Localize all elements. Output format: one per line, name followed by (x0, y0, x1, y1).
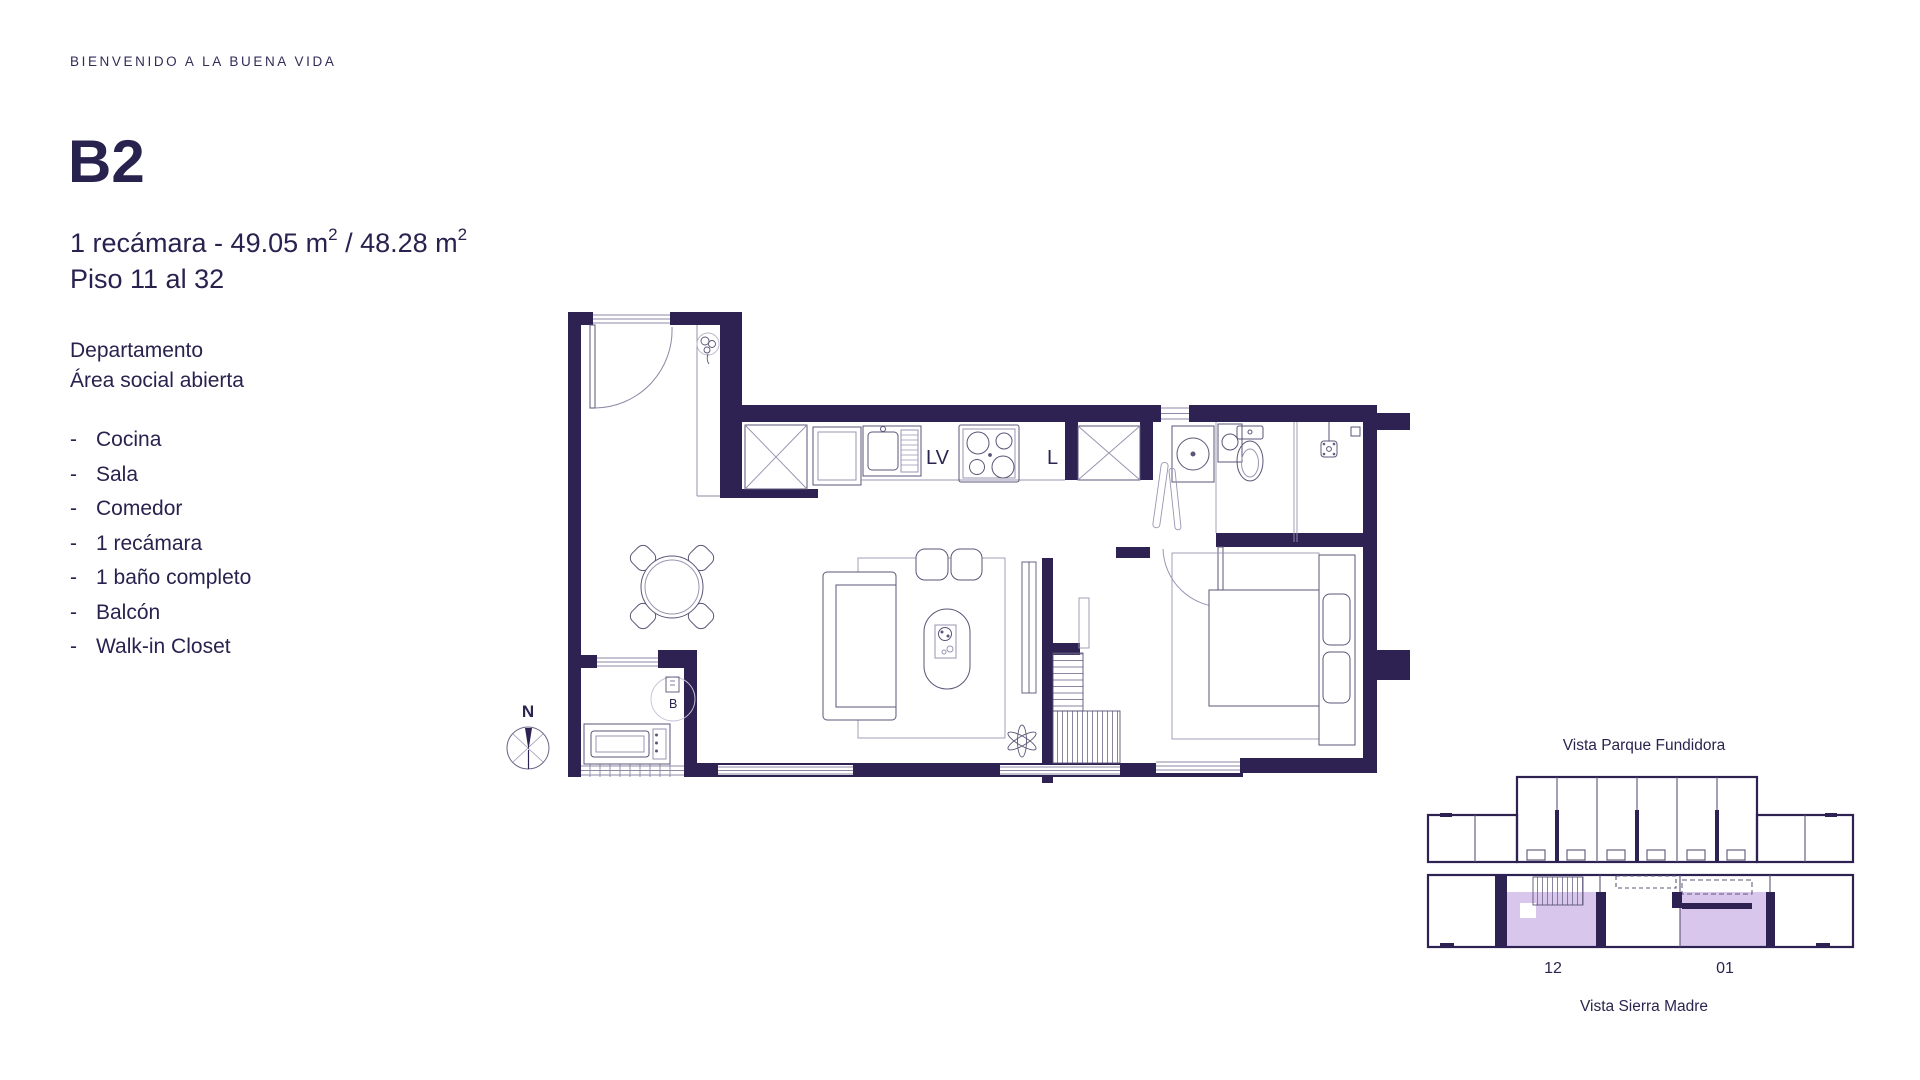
entry-door (590, 325, 672, 408)
dining-table-icon (627, 542, 716, 631)
boiler-label: B (669, 697, 677, 711)
spec-sup2: 2 (458, 225, 467, 244)
shower-drain-icon (1351, 427, 1360, 436)
compass-north-label: N (522, 702, 534, 721)
floor-plan: LV L (560, 300, 1420, 790)
feature-item: -1 recámara (70, 532, 251, 567)
unit-code: B2 (68, 130, 145, 194)
feature-item: -Comedor (70, 497, 251, 532)
description-line-1: Departamento (70, 336, 244, 366)
stove-icon (959, 425, 1019, 482)
floor-flower-icon (1006, 725, 1038, 757)
building-wall-accents (1440, 810, 1837, 948)
shower-head-icon (1321, 422, 1337, 457)
description-line-2: Área social abierta (70, 366, 244, 396)
lounge-chairs-icon (916, 549, 982, 580)
bed-icon (1209, 555, 1355, 745)
feature-item: -Balcón (70, 601, 251, 636)
walk-in-closet-hatch (1053, 598, 1120, 763)
floors-range: Piso 11 al 32 (70, 262, 224, 296)
unit-number-12: 12 (1544, 960, 1562, 977)
sofa-icon (823, 572, 896, 720)
welcome-text: BIENVENIDO A LA BUENA VIDA (70, 54, 336, 69)
spec-part2: / 48.28 m (338, 228, 458, 258)
features-list: -Cocina -Sala -Comedor -1 recámara -1 ba… (70, 428, 251, 670)
unit-spec: 1 recámara - 49.05 m2 / 48.28 m2 (70, 220, 467, 260)
shaft-box (1078, 426, 1140, 480)
feature-item: -Cocina (70, 428, 251, 463)
toilet-icon (1237, 426, 1263, 481)
key-plan: Vista Parque Fundidora 12 01 Vis (1420, 720, 1860, 1020)
spec-sup1: 2 (328, 225, 337, 244)
washing-machine-icon (1172, 422, 1216, 533)
utility-icons (1152, 462, 1181, 530)
compass-icon: N (495, 698, 561, 780)
plant-icon (697, 333, 719, 364)
washer-label: L (1047, 447, 1058, 469)
spec-part1: 1 recámara - 49.05 m (70, 228, 328, 258)
key-plan-top-label: Vista Parque Fundidora (1563, 737, 1726, 754)
key-plan-bottom-label: Vista Sierra Madre (1580, 998, 1708, 1015)
unit-number-01: 01 (1716, 960, 1734, 977)
balcony-rail (581, 764, 684, 777)
feature-item: -1 baño completo (70, 566, 251, 601)
walls (568, 312, 1410, 783)
feature-item: -Walk-in Closet (70, 635, 251, 670)
stairs-hatch (1533, 877, 1583, 905)
shower-glass (1294, 422, 1297, 542)
grill-icon (584, 724, 670, 764)
building-outline (1428, 777, 1853, 947)
tv-console-icon (1022, 562, 1036, 693)
fridge-icon (813, 427, 861, 485)
dishwasher-label: LV (926, 447, 950, 469)
unit-description: Departamento Área social abierta (70, 336, 244, 395)
coffee-table-icon (924, 609, 970, 689)
shaft-box (745, 425, 807, 489)
feature-item: -Sala (70, 463, 251, 498)
